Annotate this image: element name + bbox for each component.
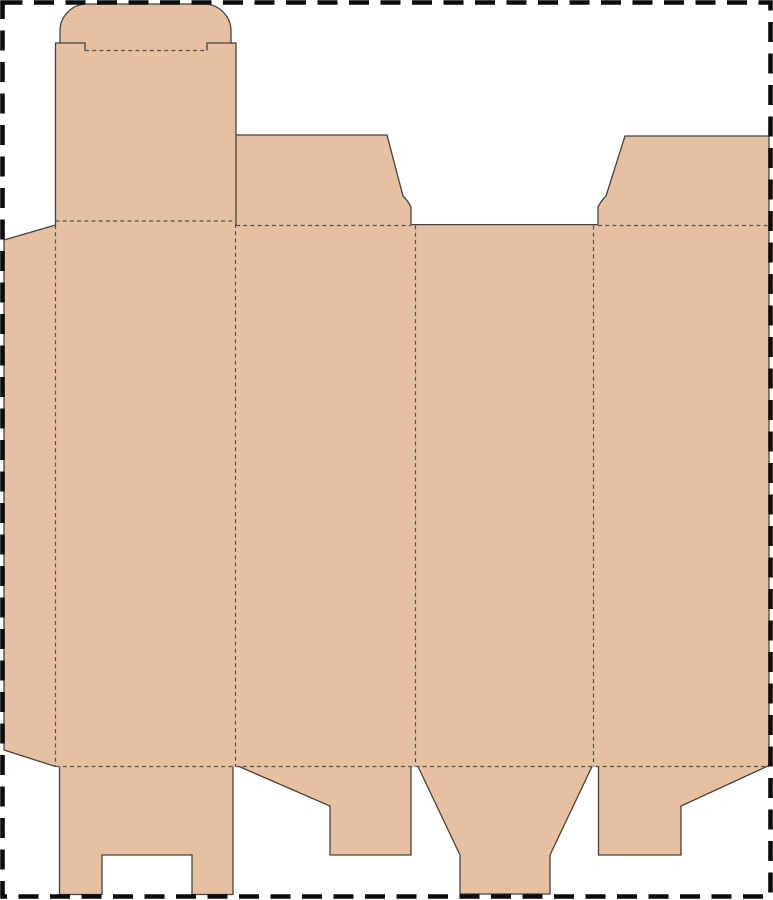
dieline-drawing bbox=[0, 0, 773, 900]
carton-blank bbox=[4, 4, 769, 895]
dieline-sheet bbox=[0, 0, 773, 900]
